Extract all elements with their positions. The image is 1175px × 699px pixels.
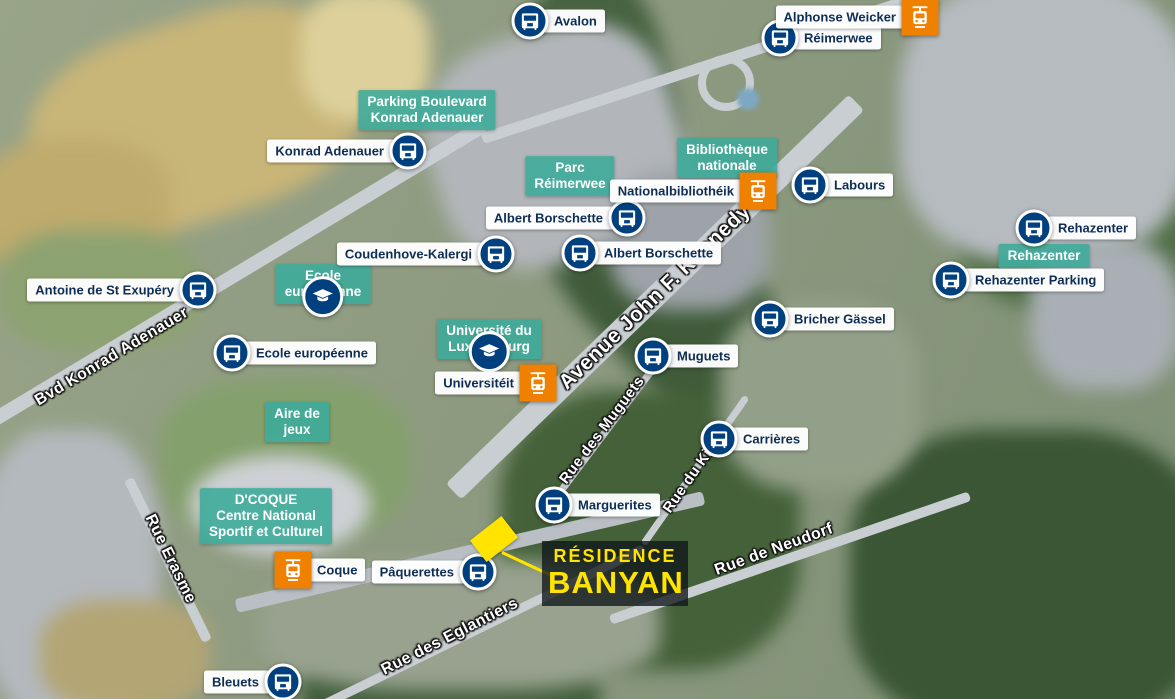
bus-icon[interactable] — [635, 338, 672, 375]
bus-icon[interactable] — [562, 235, 599, 272]
tram-stop-label: Universitéit — [435, 372, 530, 395]
bus-stop-label: Coudenhove-Kalergi — [337, 243, 488, 266]
bus-icon[interactable] — [752, 301, 789, 338]
tram-stop-label: Nationalbibliothéik — [610, 180, 750, 203]
place-label: Rehazenter — [999, 244, 1090, 268]
graduation-cap-icon[interactable] — [469, 331, 510, 372]
bus-icon[interactable] — [792, 167, 829, 204]
residence-title-line2: BANYAN — [548, 567, 682, 599]
place-label: Parking Boulevard Konrad Adenauer — [358, 90, 495, 130]
bus-stop-label: Muguets — [661, 345, 738, 368]
bus-icon[interactable] — [214, 335, 251, 372]
bus-icon[interactable] — [265, 664, 302, 699]
bus-icon[interactable] — [180, 272, 217, 309]
bus-icon[interactable] — [512, 3, 549, 40]
place-label: Parc Réimerwee — [525, 156, 614, 196]
bus-stop-label: Konrad Adenauer — [267, 140, 400, 163]
bus-stop-label: Rehazenter — [1042, 217, 1136, 240]
field-patch — [40, 600, 210, 699]
bus-icon[interactable] — [478, 236, 515, 273]
tram-icon[interactable] — [902, 0, 939, 36]
bus-stop-label: Albert Borschette — [486, 207, 619, 230]
bus-icon[interactable] — [390, 133, 427, 170]
bus-stop-label: Ecole européenne — [240, 342, 376, 365]
bus-stop-label: Pâquerettes — [372, 561, 470, 584]
place-label: Aire de jeux — [265, 402, 329, 442]
place-label: Ecole européenne — [276, 264, 371, 304]
graduation-cap-icon[interactable] — [303, 276, 344, 317]
tram-stop-label: Alphonse Weicker — [776, 6, 912, 29]
bus-icon[interactable] — [701, 421, 738, 458]
bus-icon[interactable] — [460, 554, 497, 591]
place-label: D'COQUE Centre National Sportif et Cultu… — [200, 488, 332, 544]
residence-title-line1: RÉSIDENCE — [548, 546, 682, 567]
tram-icon[interactable] — [740, 173, 777, 210]
residence-banyan-callout: RÉSIDENCE BANYAN — [542, 541, 688, 606]
tram-icon[interactable] — [275, 552, 312, 589]
fountain-pond — [737, 88, 759, 110]
bus-stop-label: Labours — [818, 174, 893, 197]
bus-icon[interactable] — [1016, 210, 1053, 247]
bus-stop-label: Carrières — [727, 428, 808, 451]
map-canvas: Bvd Konrad AdenauerAvenue John F. Kenned… — [0, 0, 1175, 699]
bus-stop-label: Antoine de St Exupéry — [27, 279, 190, 302]
forest-patch — [850, 430, 1175, 699]
bus-icon[interactable] — [609, 200, 646, 237]
bus-stop-label: Réimerwee — [788, 27, 881, 50]
bus-stop-label: Bricher Gässel — [778, 308, 894, 331]
bus-stop-label: Marguerites — [562, 494, 660, 517]
bus-icon[interactable] — [933, 262, 970, 299]
bus-stop-label: Albert Borschette — [588, 242, 721, 265]
tram-icon[interactable] — [520, 365, 557, 402]
bus-icon[interactable] — [536, 487, 573, 524]
place-label: Université du Luxembourg — [437, 319, 541, 359]
bus-stop-label: Rehazenter Parking — [959, 269, 1104, 292]
